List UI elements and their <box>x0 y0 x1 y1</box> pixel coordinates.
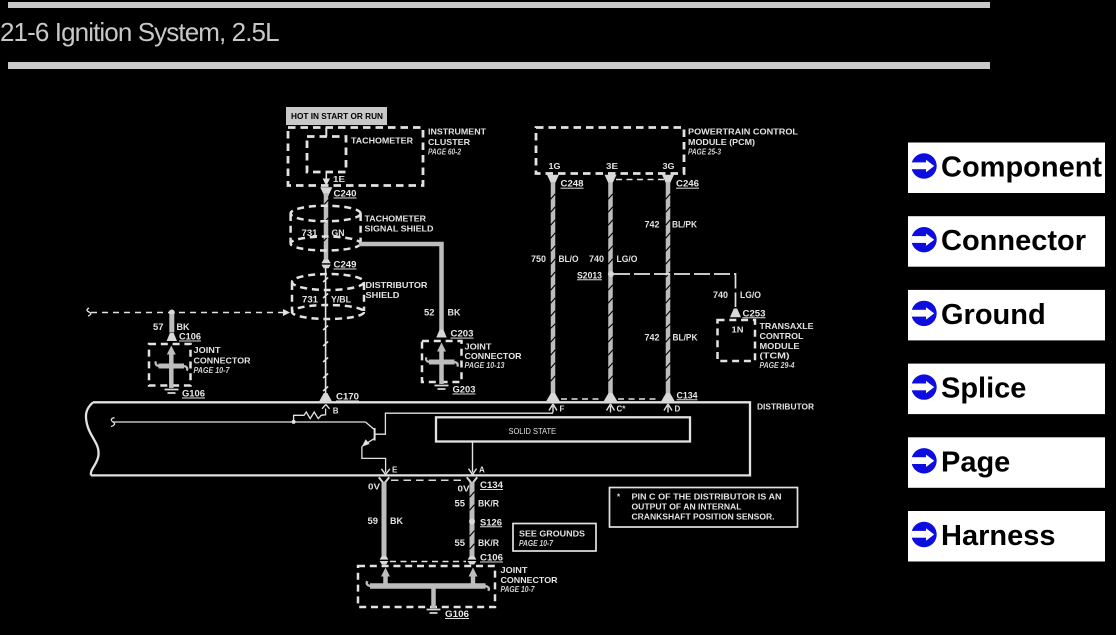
svg-text:PAGE 10-7: PAGE 10-7 <box>519 539 553 548</box>
svg-text:CONTROL: CONTROL <box>760 331 804 341</box>
svg-text:SIGNAL SHIELD: SIGNAL SHIELD <box>365 224 434 234</box>
svg-text:BK: BK <box>448 308 461 319</box>
svg-text:C170: C170 <box>336 392 359 403</box>
svg-text:BK: BK <box>390 516 403 527</box>
svg-text:C240: C240 <box>334 189 357 200</box>
svg-text:JOINT: JOINT <box>465 341 493 351</box>
svg-text:PAGE 29-4: PAGE 29-4 <box>760 361 795 370</box>
svg-text:3G: 3G <box>663 162 675 171</box>
svg-text:Harness: Harness <box>941 520 1055 552</box>
svg-text:C134: C134 <box>480 480 504 491</box>
svg-text:C248: C248 <box>561 179 584 190</box>
svg-text:731: 731 <box>302 228 319 239</box>
svg-text:CRANKSHAFT POSITION SENSOR.: CRANKSHAFT POSITION SENSOR. <box>632 512 775 521</box>
svg-text:SOLID STATE: SOLID STATE <box>509 427 557 436</box>
svg-text:740: 740 <box>589 254 604 265</box>
svg-text:PAGE 60-2: PAGE 60-2 <box>428 147 461 156</box>
svg-text:Component: Component <box>941 152 1102 184</box>
svg-text:PAGE 10-7: PAGE 10-7 <box>501 585 535 594</box>
svg-text:1E: 1E <box>333 175 346 184</box>
svg-text:3E: 3E <box>606 162 619 171</box>
svg-text:SEE GROUNDS: SEE GROUNDS <box>519 529 585 539</box>
svg-text:55: 55 <box>455 538 466 549</box>
svg-text:Y/BL: Y/BL <box>331 295 351 306</box>
svg-text:731: 731 <box>302 295 319 306</box>
svg-text:A: A <box>479 466 485 475</box>
svg-text:D: D <box>675 405 681 414</box>
svg-text:0V: 0V <box>458 485 471 494</box>
svg-text:(TCM): (TCM) <box>760 351 790 361</box>
svg-text:Connector: Connector <box>941 225 1086 257</box>
svg-text:DISTRIBUTOR: DISTRIBUTOR <box>366 280 428 290</box>
svg-text:S2013: S2013 <box>577 270 602 281</box>
svg-text:BK/R: BK/R <box>478 499 499 510</box>
svg-text:C*: C* <box>617 405 627 414</box>
svg-text:G106: G106 <box>445 609 469 620</box>
svg-text:MODULE: MODULE <box>760 341 800 351</box>
svg-text:C253: C253 <box>743 308 766 319</box>
svg-text:G106: G106 <box>182 389 205 400</box>
svg-text:PAGE 25-3: PAGE 25-3 <box>688 147 721 156</box>
svg-text:PIN C OF THE DISTRIBUTOR IS AN: PIN C OF THE DISTRIBUTOR IS AN <box>632 493 782 502</box>
svg-text:59: 59 <box>368 516 379 527</box>
svg-text:1G: 1G <box>549 162 561 171</box>
svg-text:C106: C106 <box>480 553 503 564</box>
svg-text:JOINT: JOINT <box>194 345 222 355</box>
svg-text:CONNECTOR: CONNECTOR <box>465 351 522 361</box>
svg-text:BL/O: BL/O <box>559 254 579 265</box>
svg-text:MODULE (PCM): MODULE (PCM) <box>688 137 755 147</box>
svg-text:CLUSTER: CLUSTER <box>428 137 470 147</box>
svg-text:PAGE 10-13: PAGE 10-13 <box>465 361 505 370</box>
svg-text:Page: Page <box>941 446 1010 478</box>
svg-text:SHIELD: SHIELD <box>366 290 400 300</box>
svg-text:LG/O: LG/O <box>740 290 761 301</box>
svg-text:OUTPUT OF AN INTERNAL: OUTPUT OF AN INTERNAL <box>632 503 742 512</box>
svg-text:1N: 1N <box>732 326 744 335</box>
svg-text:52: 52 <box>424 308 435 319</box>
svg-text:C106: C106 <box>179 332 201 343</box>
svg-text:B: B <box>333 407 339 416</box>
svg-text:C249: C249 <box>334 260 357 271</box>
svg-text:C203: C203 <box>451 329 474 340</box>
svg-text:TACHOMETER: TACHOMETER <box>365 214 427 224</box>
svg-text:PAGE 10-7: PAGE 10-7 <box>194 366 230 375</box>
svg-text:CONNECTOR: CONNECTOR <box>501 575 558 585</box>
svg-text:CONNECTOR: CONNECTOR <box>194 355 251 365</box>
svg-text:742: 742 <box>645 220 660 231</box>
svg-text:55: 55 <box>455 499 466 510</box>
svg-text:S126: S126 <box>480 517 502 528</box>
svg-text:TRANSAXLE: TRANSAXLE <box>760 321 814 331</box>
svg-text:JOINT: JOINT <box>501 565 529 575</box>
svg-text:57: 57 <box>153 322 164 333</box>
svg-text:POWERTRAIN CONTROL: POWERTRAIN CONTROL <box>688 127 798 137</box>
svg-text:DISTRIBUTOR: DISTRIBUTOR <box>757 402 814 412</box>
svg-text:BL/PK: BL/PK <box>672 220 697 231</box>
svg-text:Splice: Splice <box>941 373 1026 405</box>
svg-text:HOT IN START OR RUN: HOT IN START OR RUN <box>291 112 383 121</box>
svg-text:TACHOMETER: TACHOMETER <box>351 135 413 145</box>
svg-text:E: E <box>392 466 398 475</box>
svg-text:Ground: Ground <box>941 299 1046 331</box>
svg-text:BK/R: BK/R <box>478 538 499 549</box>
svg-text:GN: GN <box>332 228 345 239</box>
svg-text:21-6 Ignition System, 2.5L: 21-6 Ignition System, 2.5L <box>0 17 279 47</box>
svg-text:C134: C134 <box>677 390 699 401</box>
svg-text:742: 742 <box>645 333 660 344</box>
svg-text:INSTRUMENT: INSTRUMENT <box>428 127 487 137</box>
svg-text:C246: C246 <box>676 179 699 190</box>
svg-text:BL/PK: BL/PK <box>673 333 698 344</box>
svg-text:740: 740 <box>713 290 728 301</box>
svg-text:750: 750 <box>531 254 546 265</box>
svg-text:0V: 0V <box>368 482 381 491</box>
svg-text:G203: G203 <box>453 385 476 396</box>
svg-text:LG/O: LG/O <box>617 254 638 265</box>
svg-text:F: F <box>560 405 565 414</box>
